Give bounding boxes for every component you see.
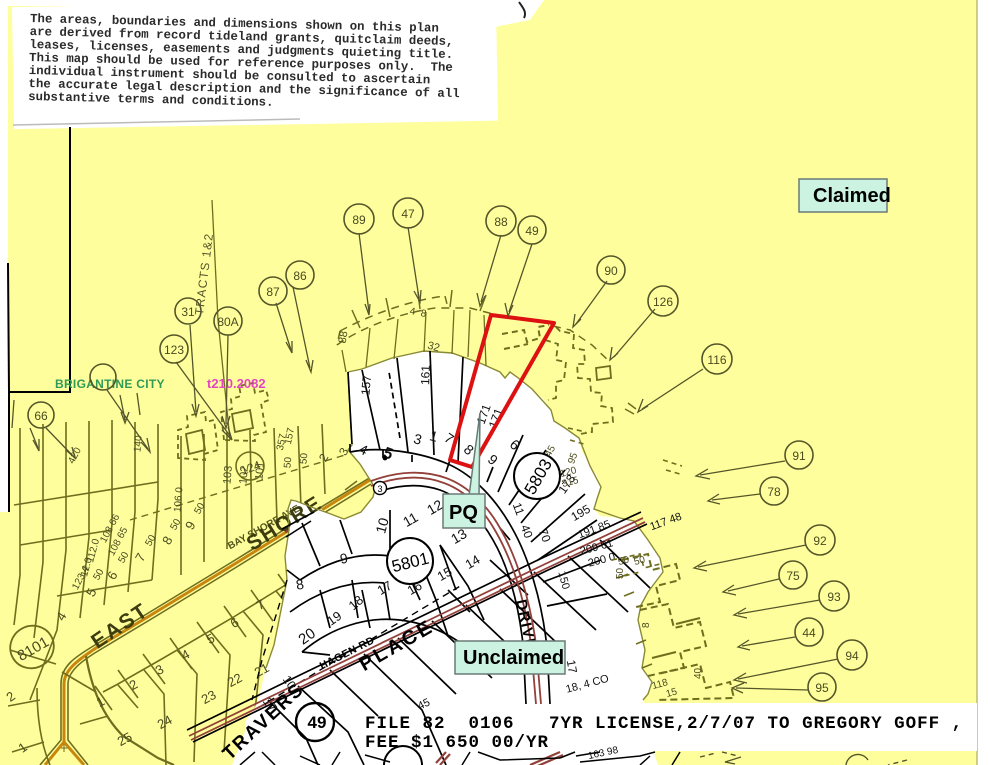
svg-text:88: 88 [494, 215, 508, 229]
svg-text:123: 123 [164, 343, 184, 357]
svg-text:106 0: 106 0 [172, 486, 185, 512]
svg-text:8: 8 [641, 622, 652, 628]
svg-text:49: 49 [308, 713, 327, 732]
svg-text:75: 75 [786, 569, 800, 583]
svg-text:50: 50 [282, 456, 294, 468]
svg-text:86: 86 [293, 269, 307, 283]
svg-text:161: 161 [418, 364, 433, 385]
svg-text:44: 44 [802, 626, 816, 640]
svg-text:3: 3 [377, 484, 382, 494]
svg-text:90: 90 [604, 264, 618, 278]
svg-text:116: 116 [707, 353, 726, 367]
svg-text:94: 94 [845, 649, 859, 663]
svg-text:17: 17 [564, 659, 580, 675]
svg-text:40: 40 [693, 667, 704, 679]
svg-text:88: 88 [337, 330, 351, 344]
svg-text:66: 66 [34, 409, 48, 423]
svg-text:92: 92 [813, 534, 827, 548]
svg-text:Claimed: Claimed [813, 185, 891, 207]
svg-text:87: 87 [266, 285, 280, 299]
svg-text:103: 103 [221, 465, 235, 484]
svg-text:93: 93 [827, 590, 841, 604]
svg-text:FILE 82 0106 7YR LICENSE,2/: FILE 82 0106 7YR LICENSE,2/7/07 TO GREGO… [365, 714, 963, 734]
svg-text:50: 50 [298, 452, 310, 464]
svg-text:80A: 80A [217, 315, 238, 329]
svg-text:PQ: PQ [449, 502, 478, 524]
svg-text:95: 95 [815, 681, 829, 695]
svg-text:157: 157 [358, 374, 374, 395]
svg-text:49: 49 [525, 224, 539, 238]
svg-text:Unclaimed: Unclaimed [463, 647, 564, 669]
svg-text:50: 50 [615, 567, 626, 579]
svg-text:31: 31 [181, 305, 195, 319]
svg-text:78: 78 [767, 485, 781, 499]
svg-text:47: 47 [401, 207, 415, 221]
svg-text:89: 89 [352, 213, 366, 227]
svg-text:126: 126 [653, 295, 673, 309]
svg-text:t210.2082: t210.2082 [207, 376, 266, 391]
svg-text:91: 91 [792, 449, 806, 463]
